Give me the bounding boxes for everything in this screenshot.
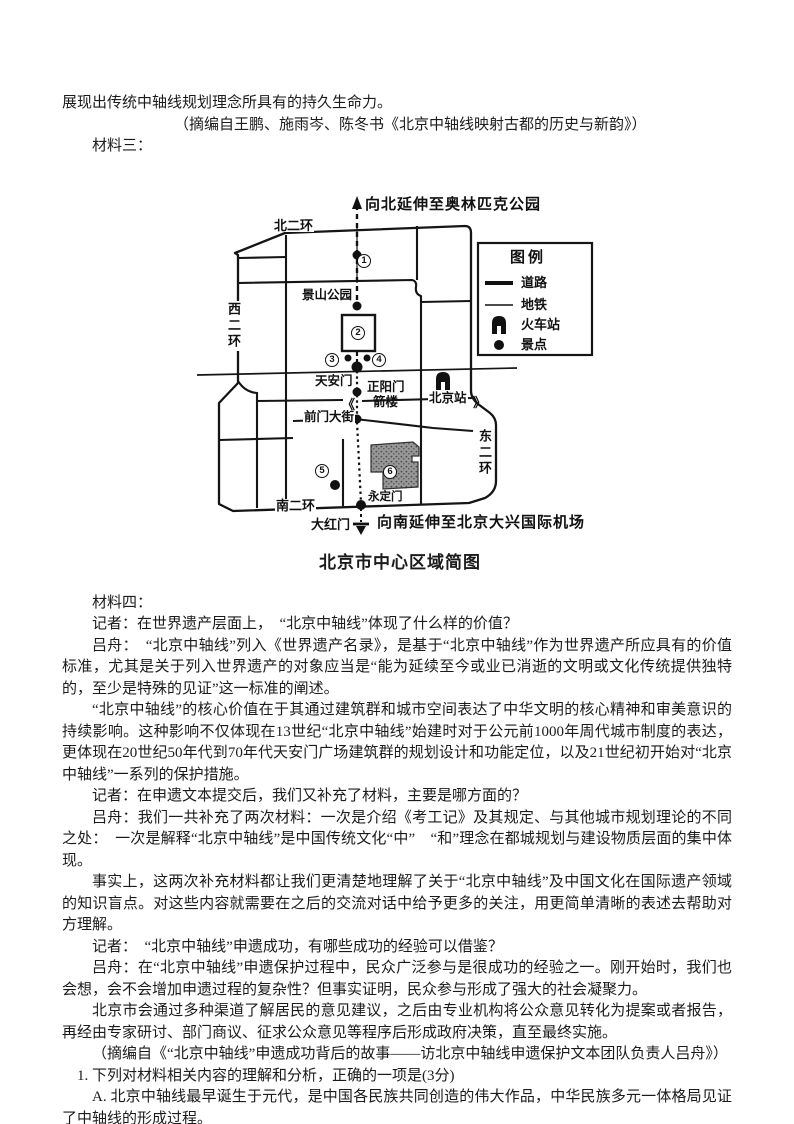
tiananmen-label: 天安门	[315, 375, 353, 388]
material4-label: 材料四：	[62, 593, 732, 615]
material3-label: 材料三：	[62, 136, 732, 158]
interview-paragraph: 北京市会通过多种渠道了解居民的意见建议，之后由专业机构将公众意见转化为提案或者报…	[62, 1001, 732, 1044]
south-extension-label: 向南延伸至北京大兴国际机场	[377, 516, 585, 529]
ring-east-label: 东二环	[478, 428, 491, 478]
interview-paragraph: “北京中轴线”的核心价值在于其通过建筑群和城市空间表达了中华文明的核心精神和审美…	[62, 700, 732, 786]
document-body: 展现出传统中轴线规划理念所具有的持久生命力。 （摘编自王鹏、施雨岑、陈冬书《北京…	[62, 93, 732, 1124]
legend-scenic-spot-icon	[494, 340, 504, 350]
train-station-icon	[436, 372, 450, 390]
intro-line: 展现出传统中轴线规划理念所具有的持久生命力。	[62, 93, 732, 115]
beijing-station-label: 北京站	[428, 392, 468, 405]
spot-marker-3: 3	[325, 353, 339, 367]
north-extension-label: 向北延伸至奥林匹克公园	[365, 198, 541, 211]
ring-south-label: 南二环	[275, 499, 316, 512]
spot-marker-2: 2	[351, 326, 365, 340]
map-caption: 北京市中心区域简图	[185, 553, 615, 573]
north-arrow-icon	[352, 196, 362, 209]
jianlou-label: 箭楼	[373, 396, 398, 409]
legend-train-station-label: 火车站	[521, 318, 560, 331]
qianmen-street-label: 前门大街	[303, 411, 355, 424]
interview-paragraph: 记者： “北京中轴线”申遗成功，有哪些成功的经验可以借鉴？	[62, 937, 732, 959]
zhengyangmen-label: 正阳门	[366, 381, 406, 394]
interview-paragraph: 记者：在世界遗产层面上， “北京中轴线”体现了什么样的价值？	[62, 614, 732, 636]
legend-train-station-icon	[492, 316, 506, 334]
spot-marker-6: 6	[383, 465, 397, 479]
legend-scenic-spot-label: 景点	[521, 338, 547, 351]
interview-paragraph: 事实上，这两次补充材料都让我们更清楚地理解了关于“北京中轴线”及中国文化在国际遗…	[62, 872, 732, 937]
legend-title: 图例	[510, 251, 546, 264]
road-break-right-mark: 》	[473, 392, 486, 411]
material4-source: （摘编自《“北京中轴线”申遗成功背后的故事——访北京中轴线申遗保护文本团队负责人…	[62, 1044, 732, 1066]
beijing-central-axis-map: 向北延伸至奥林匹克公园 北二环 西二环 东二环 南二环 景山公园 天安门 正阳门…	[185, 195, 615, 547]
spot-marker-5: 5	[315, 464, 329, 478]
spot-marker-4: 4	[372, 353, 386, 367]
legend-subway-label: 地铁	[521, 298, 547, 311]
interview-paragraph: 吕舟： “北京中轴线”列入《世界遗产名录》，是基于“北京中轴线”作为世界遗产所应…	[62, 636, 732, 701]
interview-paragraph: 记者：在申遗文本提交后，我们又补充了材料，主要是哪方面的？	[62, 786, 732, 808]
spot-marker-1: 1	[357, 254, 371, 268]
inner-roads	[219, 226, 473, 508]
exam-page: 展现出传统中轴线规划理念所具有的持久生命力。 （摘编自王鹏、施雨岑、陈冬书《北京…	[0, 0, 794, 1124]
ring-west-label: 西二环	[227, 301, 240, 351]
temple-of-heaven-area	[371, 442, 419, 489]
ring-north-label: 北二环	[273, 219, 314, 232]
question-1-option-a: A. 北京中轴线最早诞生于元代，是中国各民族共同创造的伟大作品，中华民族多元一体…	[62, 1087, 732, 1124]
question-1-stem: 1. 下列对材料相关内容的理解和分析，正确的一项是(3分)	[62, 1066, 732, 1088]
interview-paragraph: 吕舟：在“北京中轴线”申遗保护过程中，民众广泛参与是很成功的经验之一。刚开始时，…	[62, 958, 732, 1001]
jingshan-park-label: 景山公园	[302, 289, 352, 302]
dahongmen-label: 大红门	[311, 518, 350, 531]
legend-road-label: 道路	[521, 276, 547, 289]
interview-paragraph: 吕舟：我们一共补充了两次材料：一次是介绍《考工记》及其规定、与其他城市规划理论的…	[62, 808, 732, 873]
south-arrow-icon	[353, 524, 369, 535]
yongdingmen-label: 永定门	[367, 491, 404, 504]
material3-source: （摘编自王鹏、施雨岑、陈冬书《北京中轴线映射古都的历史与新韵》）	[62, 115, 732, 137]
